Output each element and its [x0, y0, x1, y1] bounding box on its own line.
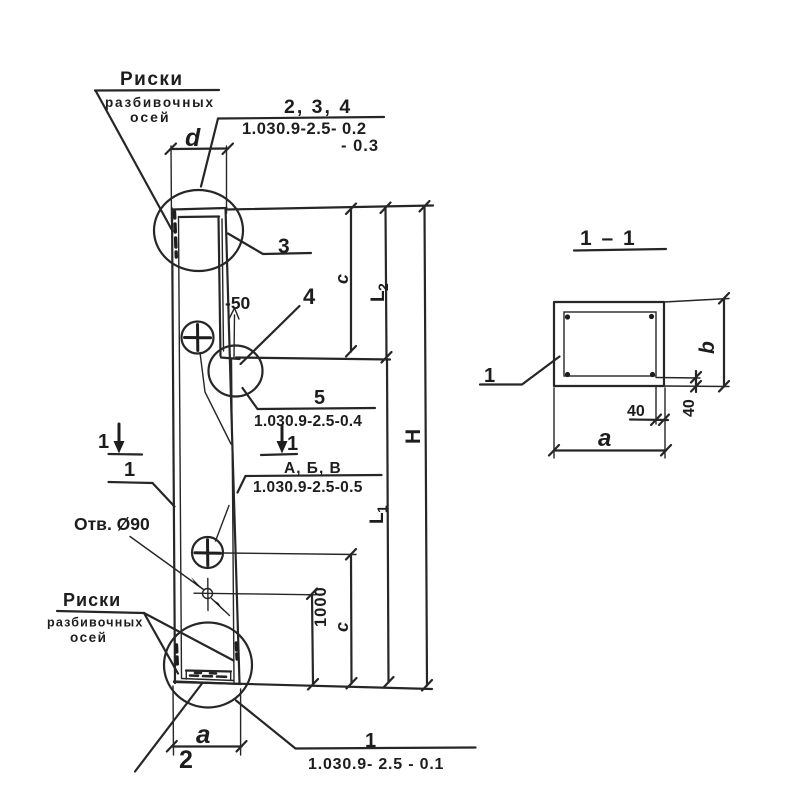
- svg-text:d: d: [185, 124, 201, 152]
- svg-text:1000: 1000: [312, 586, 330, 627]
- svg-text:Отв. Ø90: Отв. Ø90: [74, 514, 150, 534]
- svg-text:a: a: [196, 719, 210, 749]
- svg-text:1: 1: [98, 431, 109, 453]
- svg-text:40: 40: [627, 403, 645, 420]
- svg-text:- 0.3: - 0.3: [341, 137, 379, 155]
- svg-text:c: c: [332, 274, 352, 284]
- svg-text:-50: -50: [225, 293, 251, 313]
- svg-text:5: 5: [314, 387, 325, 409]
- svg-text:H: H: [402, 429, 425, 444]
- svg-text:1.030.9-2.5- 0.2: 1.030.9-2.5- 0.2: [242, 120, 367, 138]
- svg-text:2: 2: [375, 283, 391, 291]
- svg-text:осей: осей: [70, 630, 107, 645]
- svg-text:a: a: [598, 425, 611, 452]
- svg-text:b: b: [696, 341, 719, 354]
- svg-text:4: 4: [303, 284, 316, 309]
- svg-text:1: 1: [124, 459, 135, 481]
- svg-text:1 – 1: 1 – 1: [580, 227, 637, 250]
- svg-text:2, 3, 4: 2, 3, 4: [284, 96, 352, 118]
- svg-text:осей: осей: [130, 109, 171, 125]
- svg-text:1: 1: [287, 433, 298, 455]
- svg-text:1.030.9- 2.5 - 0.1: 1.030.9- 2.5 - 0.1: [308, 756, 444, 773]
- svg-text:Риски: Риски: [63, 590, 121, 610]
- svg-text:c: c: [332, 622, 352, 632]
- svg-text:2: 2: [179, 746, 193, 774]
- svg-text:разбивочных: разбивочных: [47, 616, 144, 630]
- svg-text:разбивочных: разбивочных: [105, 95, 215, 110]
- svg-text:1: 1: [374, 505, 390, 513]
- svg-text:Риски: Риски: [120, 69, 184, 90]
- svg-text:1.030.9-2.5-0.4: 1.030.9-2.5-0.4: [254, 413, 362, 430]
- svg-text:1.030.9-2.5-0.5: 1.030.9-2.5-0.5: [253, 479, 363, 496]
- svg-text:40: 40: [681, 399, 698, 417]
